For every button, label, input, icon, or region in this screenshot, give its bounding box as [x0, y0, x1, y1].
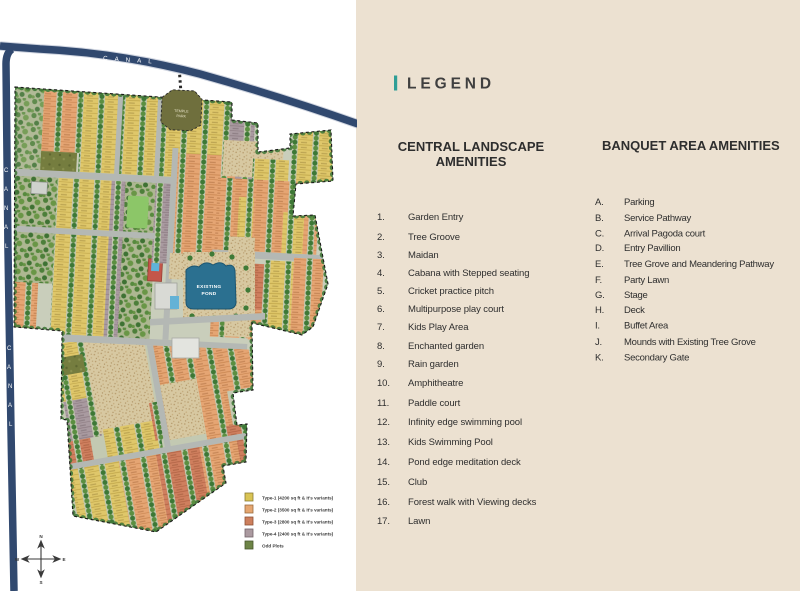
svg-text:Paddle court: Paddle court — [408, 398, 461, 409]
svg-text:Garden Entry: Garden Entry — [408, 212, 464, 223]
svg-text:C: C — [7, 346, 12, 352]
svg-text:Deck: Deck — [624, 305, 645, 316]
svg-text:Rain garden: Rain garden — [408, 359, 459, 370]
svg-text:7.: 7. — [377, 322, 385, 333]
svg-text:H.: H. — [595, 305, 604, 316]
svg-text:Enchanted garden: Enchanted garden — [408, 341, 484, 352]
svg-text:Secondary Gate: Secondary Gate — [624, 353, 689, 364]
svg-text:Tree Groove: Tree Groove — [408, 232, 460, 243]
svg-text:8.: 8. — [377, 341, 385, 352]
svg-text:W: W — [15, 557, 20, 562]
svg-text:Type-4 (2400 sq ft & it's vari: Type-4 (2400 sq ft & it's variants) — [262, 532, 334, 537]
svg-text:3.: 3. — [377, 250, 385, 261]
svg-text:Maidan: Maidan — [408, 250, 439, 261]
svg-text:CENTRAL LANDSCAPE: CENTRAL LANDSCAPE — [398, 139, 545, 154]
svg-text:J.: J. — [595, 337, 602, 348]
svg-text:Type-3 (2800 sq ft & it's vari: Type-3 (2800 sq ft & it's variants) — [262, 520, 334, 525]
svg-text:A: A — [4, 225, 8, 231]
svg-text:I.: I. — [595, 321, 600, 332]
svg-text:D.: D. — [595, 243, 604, 254]
svg-text:Lawn: Lawn — [408, 516, 430, 527]
svg-text:A.: A. — [595, 197, 603, 208]
svg-text:10.: 10. — [377, 378, 390, 389]
svg-text:POND: POND — [201, 291, 216, 297]
svg-text:15.: 15. — [377, 477, 390, 488]
svg-text:Forest walk with Viewing decks: Forest walk with Viewing decks — [408, 497, 537, 508]
svg-text:C: C — [4, 168, 9, 174]
svg-text:Odd Plots: Odd Plots — [262, 544, 284, 549]
svg-text:Kids Swimming Pool: Kids Swimming Pool — [408, 437, 493, 448]
svg-text:N: N — [8, 384, 12, 390]
svg-text:G.: G. — [595, 290, 605, 301]
svg-text:C.: C. — [595, 229, 604, 240]
svg-text:Type-2 (3500 sq ft & it's vari: Type-2 (3500 sq ft & it's variants) — [262, 508, 334, 513]
svg-text:E.: E. — [595, 259, 603, 270]
svg-text:BANQUET AREA AMENITIES: BANQUET AREA AMENITIES — [602, 138, 780, 153]
svg-text:11.: 11. — [377, 398, 389, 409]
svg-text:Buffet Area: Buffet Area — [624, 321, 669, 332]
svg-text:Kids Play Area: Kids Play Area — [408, 322, 469, 333]
svg-text:Service Pathway: Service Pathway — [624, 213, 692, 224]
svg-text:Cabana with Stepped seating: Cabana with Stepped seating — [408, 268, 529, 279]
svg-text:Type-1 (4200 sq ft & it's vari: Type-1 (4200 sq ft & it's variants) — [262, 496, 334, 501]
svg-text:AMENITIES: AMENITIES — [436, 154, 507, 169]
svg-text:Mounds with Existing Tree Grov: Mounds with Existing Tree Grove — [624, 337, 756, 348]
svg-text:5.: 5. — [377, 286, 385, 297]
svg-text:N: N — [4, 206, 8, 212]
svg-text:9.: 9. — [377, 359, 385, 370]
svg-text:F.: F. — [595, 275, 602, 286]
svg-text:Stage: Stage — [624, 290, 648, 301]
svg-text:16.: 16. — [377, 497, 390, 508]
svg-text:6.: 6. — [377, 304, 385, 315]
svg-text:LEGEND: LEGEND — [407, 76, 495, 93]
svg-text:E: E — [62, 557, 65, 562]
svg-text:EXISTING: EXISTING — [197, 284, 222, 290]
svg-text:14.: 14. — [377, 457, 390, 468]
svg-text:2.: 2. — [377, 232, 385, 243]
svg-text:Tree Grove and Meandering Path: Tree Grove and Meandering Pathway — [624, 259, 774, 270]
svg-text:Club: Club — [408, 477, 427, 488]
svg-text:Entry Pavillion: Entry Pavillion — [624, 243, 680, 254]
svg-text:Amphitheatre: Amphitheatre — [408, 378, 463, 389]
svg-text:S: S — [39, 580, 42, 585]
svg-text:1.: 1. — [377, 212, 385, 223]
svg-text:17.: 17. — [377, 516, 390, 527]
svg-text:Multipurpose play court: Multipurpose play court — [408, 304, 504, 315]
svg-text:A: A — [8, 403, 12, 409]
svg-text:K.: K. — [595, 353, 603, 364]
svg-text:Arrival Pagoda court: Arrival Pagoda court — [624, 229, 706, 240]
svg-text:4.: 4. — [377, 268, 385, 279]
svg-text:12.: 12. — [377, 417, 390, 428]
svg-text:Pond edge meditation deck: Pond edge meditation deck — [408, 457, 521, 468]
svg-text:PARK: PARK — [176, 114, 186, 119]
svg-text:A: A — [4, 187, 8, 193]
svg-text:Cricket practice pitch: Cricket practice pitch — [408, 286, 494, 297]
svg-text:A: A — [7, 365, 11, 371]
svg-text:TEMPLE: TEMPLE — [174, 109, 189, 114]
svg-text:B.: B. — [595, 213, 603, 224]
svg-text:Parking: Parking — [624, 197, 654, 208]
svg-text:Party Lawn: Party Lawn — [624, 275, 669, 286]
svg-text:13.: 13. — [377, 437, 390, 448]
svg-text:Infinity edge swimming pool: Infinity edge swimming pool — [408, 417, 522, 428]
